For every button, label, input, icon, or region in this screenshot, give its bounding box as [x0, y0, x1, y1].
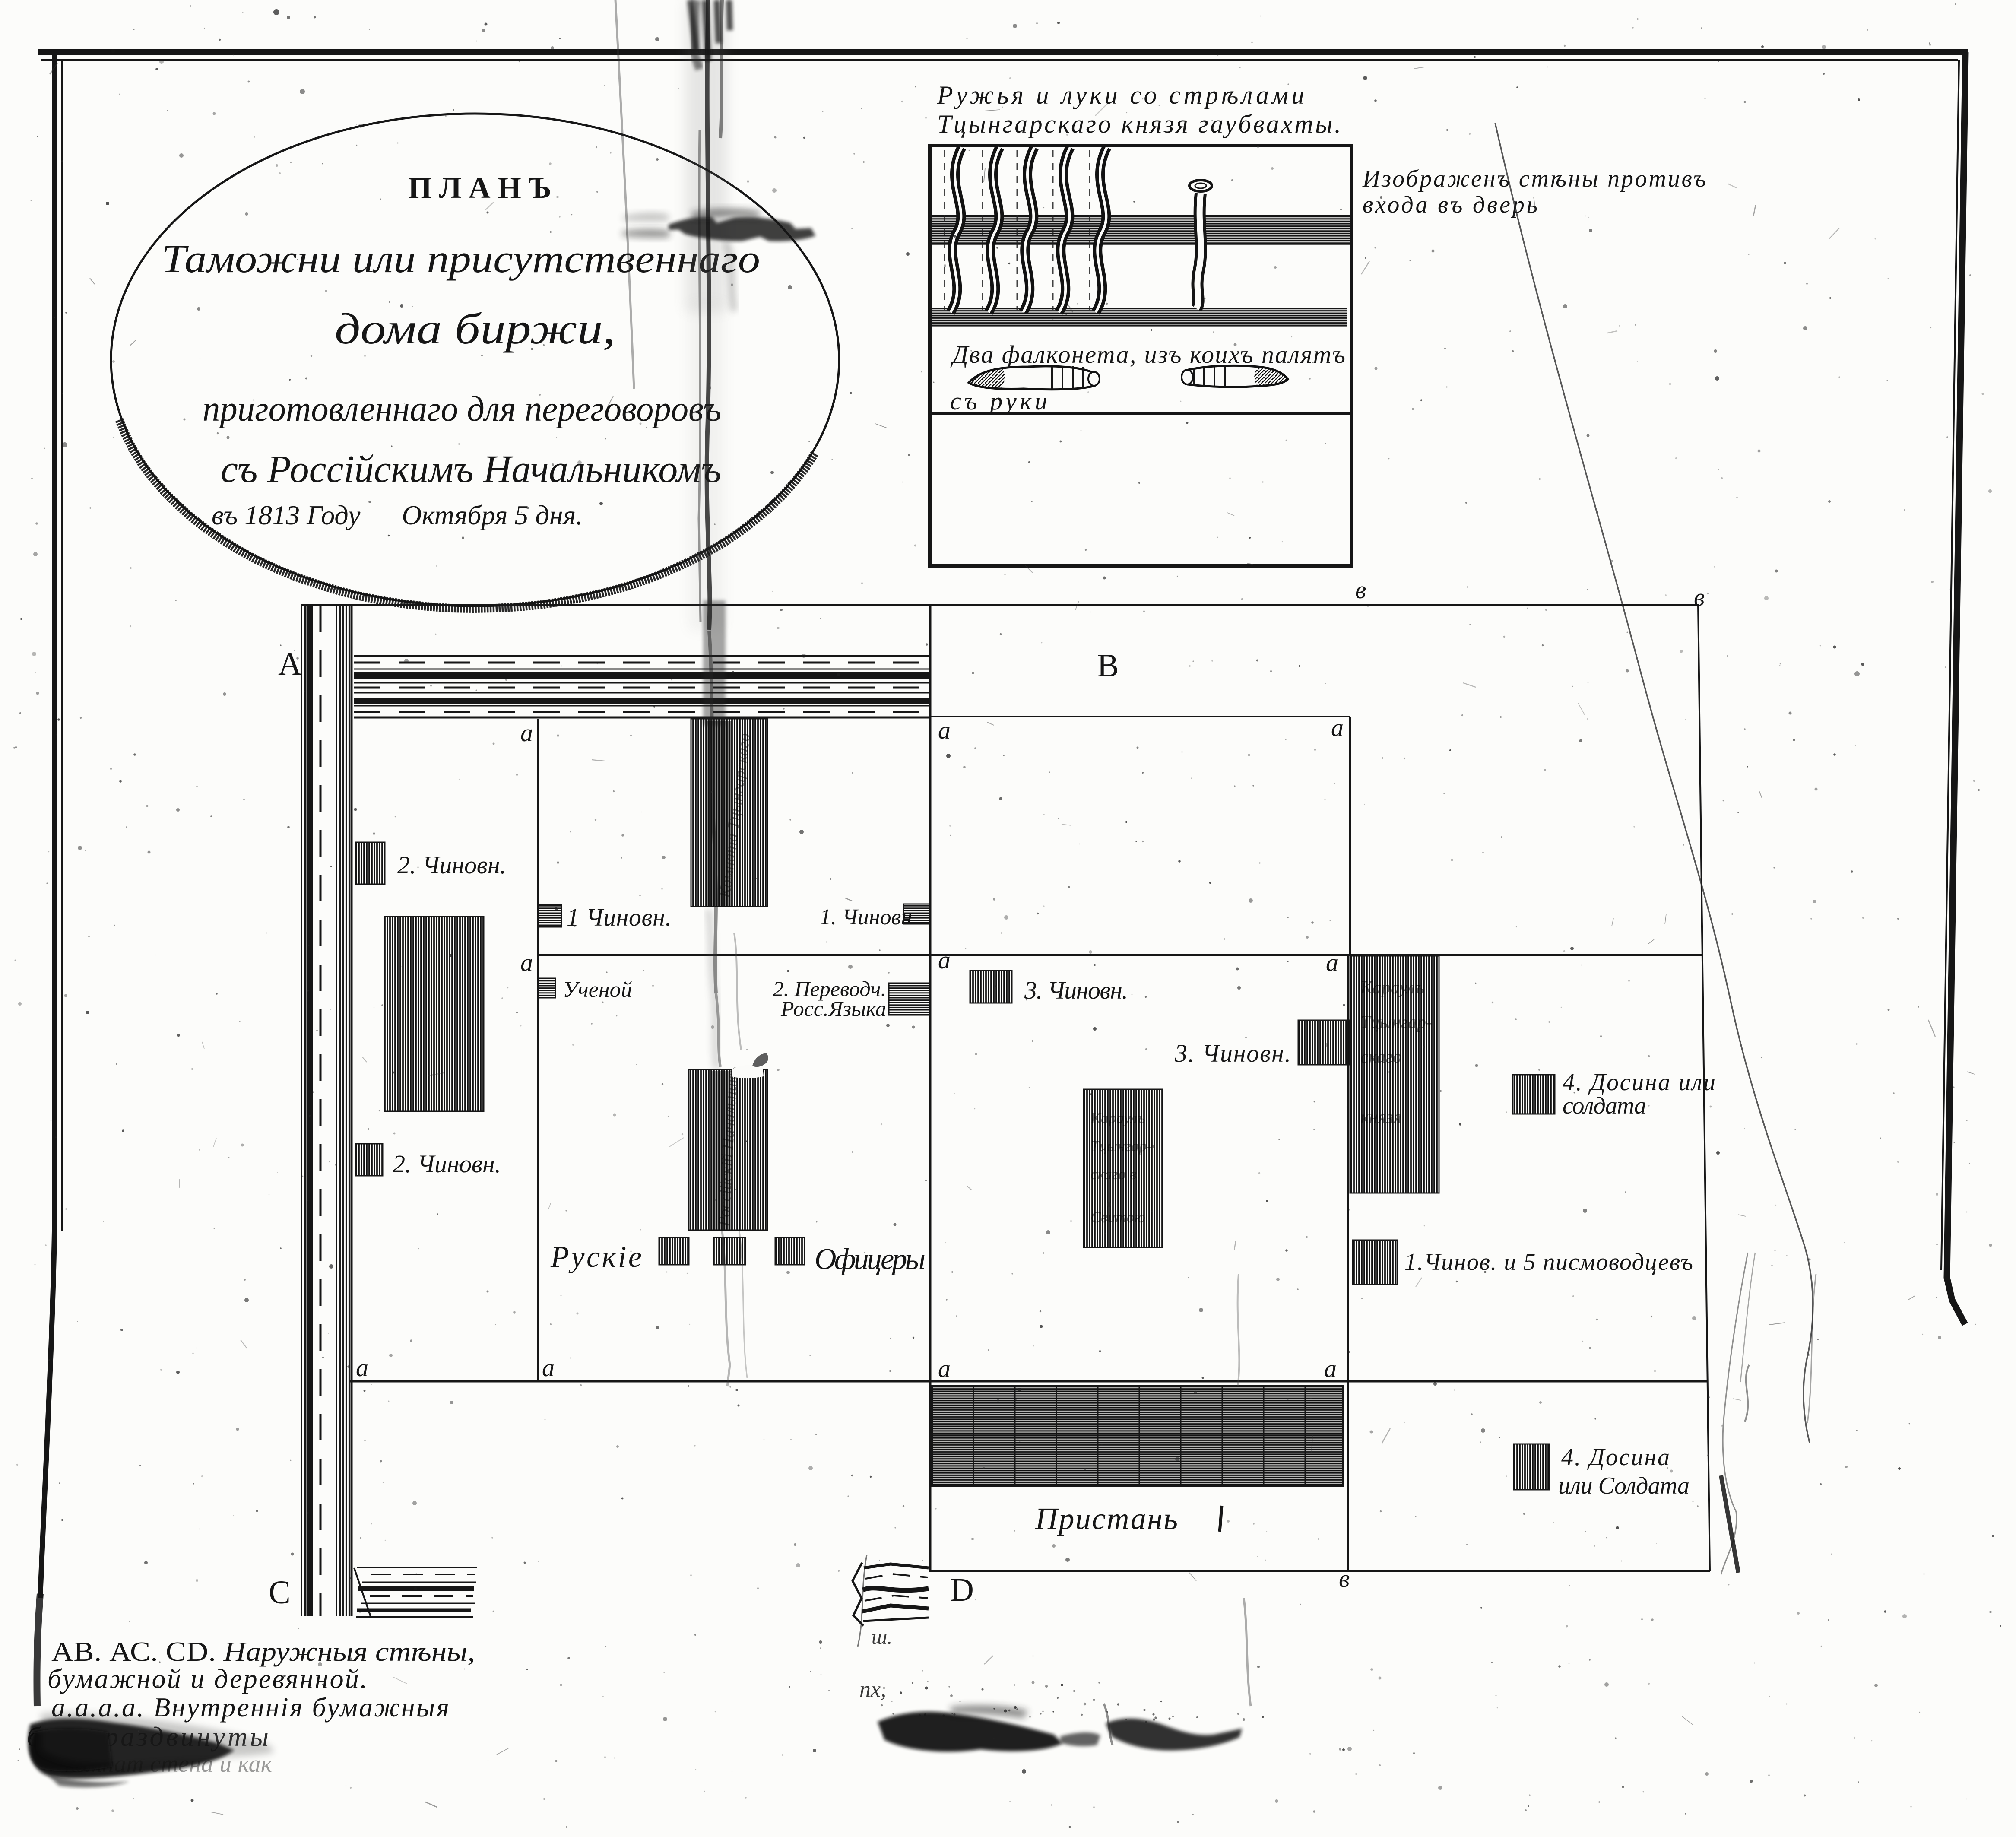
svg-text:Тцынгарскаго князя гаубвахты.: Тцынгарскаго князя гаубвахты. [937, 110, 1341, 138]
svg-text:a: a [938, 946, 951, 974]
svg-text:Пристань: Пристань [1035, 1501, 1178, 1536]
svg-text:Рускіе: Рускіе [550, 1241, 642, 1274]
svg-text:входа въ дверь: входа въ дверь [1363, 191, 1537, 218]
svg-text:a: a [938, 716, 951, 744]
svg-text:приготовленнаго для переговоро: приготовленнаго для переговоровъ [203, 389, 721, 429]
svg-text:скаго: скаго [1360, 1047, 1402, 1067]
svg-text:a: a [520, 949, 533, 977]
svg-text:A: A [278, 646, 302, 682]
svg-text:ПЛАНЪ: ПЛАНЪ [408, 171, 558, 205]
svg-text:3. Чиновн.: 3. Чиновн. [1024, 976, 1128, 1004]
svg-text:бумажной и деревянной.: бумажной и деревянной. [48, 1663, 367, 1694]
svg-text:скаго в: скаго в [1090, 1165, 1137, 1183]
svg-text:ш.: ш. [872, 1626, 892, 1649]
svg-text:a: a [1324, 1355, 1337, 1383]
svg-text:Таможни или присутственнаго: Таможни или присутственнаго [162, 237, 760, 281]
svg-text:Изображенъ стѣны противъ: Изображенъ стѣны противъ [1362, 165, 1706, 192]
svg-text:Два фалконета, изъ коихъ палят: Два фалконета, изъ коихъ палятъ [950, 340, 1345, 368]
svg-text:a: a [1331, 714, 1344, 742]
svg-text:C: C [269, 1574, 291, 1611]
svg-text:в: в [1694, 583, 1705, 611]
svg-text:B: B [1097, 647, 1119, 684]
svg-text:дома биржи,: дома биржи, [335, 305, 615, 353]
svg-text:съ Россійскимъ Начальникомъ: съ Россійскимъ Начальникомъ [221, 448, 721, 491]
svg-text:солдата: солдата [1563, 1092, 1646, 1119]
svg-text:D: D [950, 1572, 974, 1608]
svg-text:Караулъ: Караулъ [1090, 1109, 1145, 1126]
svg-text:1. Чиновн: 1. Чиновн [820, 905, 912, 930]
svg-text:a: a [1326, 949, 1338, 977]
svg-text:Офицеры: Офицеры [815, 1243, 926, 1276]
svg-text:Тцынгар-: Тцынгар- [1360, 1012, 1432, 1032]
svg-text:в: в [1355, 576, 1366, 604]
svg-text:4. Досина или: 4. Досина или [1563, 1069, 1715, 1096]
svg-text:a: a [356, 1354, 368, 1382]
svg-text:Караулъ: Караулъ [1360, 978, 1424, 998]
svg-text:Ученой: Ученой [563, 977, 632, 1002]
svg-text:пх,: пх, [859, 1677, 886, 1702]
svg-text:2. Чиновн.: 2. Чиновн. [393, 1150, 501, 1178]
svg-text:a: a [520, 719, 533, 747]
svg-text:1.Чинов. и 5 писмоводцевъ: 1.Чинов. и 5 писмоводцевъ [1404, 1249, 1693, 1275]
svg-text:Росс.Языка: Росс.Языка [780, 996, 886, 1021]
svg-text:или Солдата: или Солдата [1558, 1472, 1690, 1499]
svg-text:князя: князя [1360, 1107, 1402, 1127]
svg-text:Свитою: Свитою [1090, 1209, 1145, 1226]
svg-text:a: a [938, 1355, 951, 1383]
svg-text:Ружья и луки со стрѣлами: Ружья и луки со стрѣлами [937, 81, 1304, 109]
svg-text:съ руки: съ руки [950, 387, 1047, 415]
svg-text:1 Чиновн.: 1 Чиновн. [567, 903, 672, 931]
svg-text:въ 1813 Году Октября 5 дн: въ 1813 Году Октября 5 дня. [212, 500, 583, 530]
svg-text:2. Чиновн.: 2. Чиновн. [397, 851, 506, 879]
svg-text:АВ. АС. СD. Наружныя стѣны,: АВ. АС. СD. Наружныя стѣны, [51, 1636, 475, 1667]
svg-text:Тцынгар-: Тцынгар- [1090, 1137, 1152, 1155]
svg-text:в: в [1339, 1564, 1350, 1593]
svg-text:3. Чиновн.: 3. Чиновн. [1174, 1039, 1291, 1067]
svg-text:4. Досина: 4. Досина [1561, 1444, 1670, 1471]
svg-text:a: a [542, 1354, 555, 1382]
